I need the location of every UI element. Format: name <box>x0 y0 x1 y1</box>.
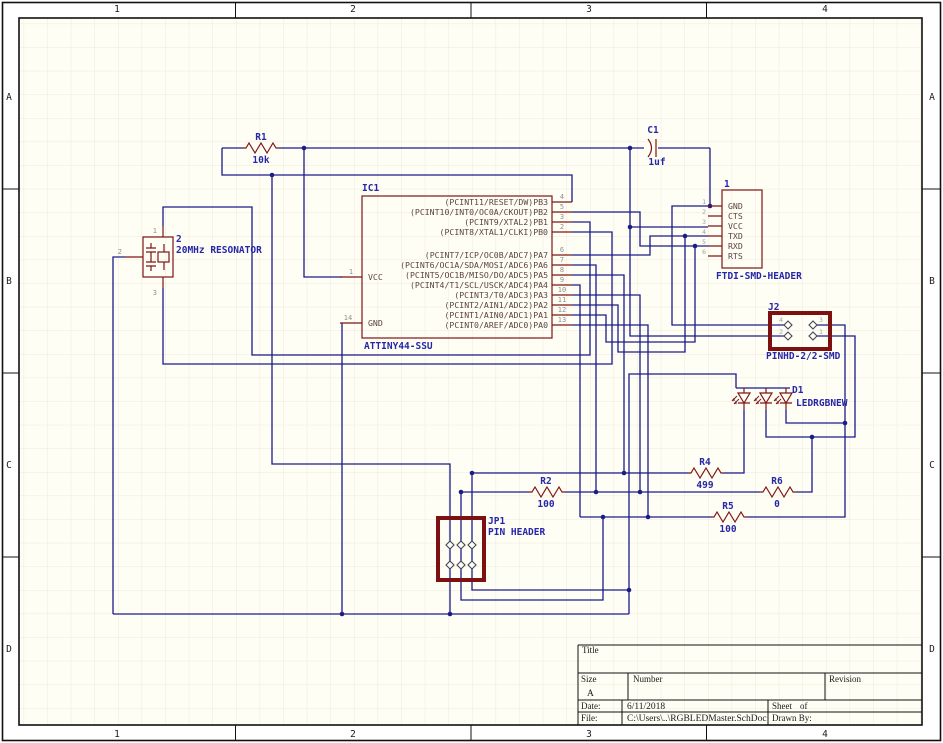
ic1-pin-number: 9 <box>560 276 564 284</box>
r6-designator: R6 <box>771 476 783 487</box>
titleblock-size-value: A <box>587 689 594 699</box>
jp1-designator: JP1 <box>488 516 505 527</box>
ftdi-pin-name: CTS <box>728 211 743 221</box>
zone-row-label: D <box>929 644 935 655</box>
r4-value: 499 <box>696 480 713 491</box>
ftdi-pin-name: VCC <box>728 221 743 231</box>
r5-designator: R5 <box>722 501 734 512</box>
zone-row-label: A <box>929 92 935 103</box>
ftdi-pin-number: 2 <box>702 208 706 216</box>
ftdi-pin-number: 5 <box>702 238 706 246</box>
ic1-pin-number: 13 <box>558 316 566 324</box>
ic1-pin-name: (PCINT2/AIN1/ADC2)PA2 <box>444 300 548 310</box>
zone-row-label: B <box>929 276 935 287</box>
ic1-designator: IC1 <box>362 183 379 194</box>
zone-row-label: C <box>929 460 935 471</box>
j2-designator: J2 <box>768 302 779 313</box>
schematic-sheet: 1 2 3 4 1 2 3 4 A B C D A B C D <box>0 0 943 743</box>
resonator-name: 20MHz RESONATOR <box>176 245 262 256</box>
ftdi-pin-number: 4 <box>702 228 706 236</box>
ic1-pin-number: 6 <box>560 246 564 254</box>
r6-value: 0 <box>774 499 780 510</box>
c1-designator: C1 <box>647 125 659 136</box>
ic1-pin-name: (PCINT6/OC1A/SDA/MOSI/ADC6)PA6 <box>400 260 548 270</box>
zone-col-label: 3 <box>586 729 592 740</box>
titleblock-sheet-of: of <box>800 701 808 711</box>
ic1-pin-name: (PCINT5/OC1B/MISO/DO/ADC5)PA5 <box>405 270 548 280</box>
d1-name: LEDRGBNEW <box>796 398 848 409</box>
ic1-pin-name: (PCINT1/AIN0/ADC1)PA1 <box>444 310 548 320</box>
ic1-pin-number: 5 <box>560 203 564 211</box>
titleblock-size-label: Size <box>581 674 597 684</box>
ic1-pin-number: 10 <box>558 286 566 294</box>
resonator-designator: 2 <box>176 234 182 245</box>
ftdi-pin-name: TXD <box>728 231 743 241</box>
ic1-pin-number: 1 <box>349 268 353 276</box>
zone-col-label: 1 <box>114 729 120 740</box>
resonator-pin-number: 3 <box>153 289 157 297</box>
zone-row-label: A <box>6 92 12 103</box>
sheet-grid <box>19 18 922 725</box>
r4-designator: R4 <box>699 457 711 468</box>
ic1-pin-name: (PCINT11/RESET/DW)PB3 <box>444 197 548 207</box>
ic1-pin-number: 8 <box>560 266 564 274</box>
ftdi-pin-name: RXD <box>728 241 743 251</box>
ftdi-pin-name: GND <box>728 201 743 211</box>
j2-pin-number: 4 <box>779 316 783 324</box>
ic1-pin-number: 4 <box>560 193 564 201</box>
zone-row-label: D <box>6 644 12 655</box>
ic1-pin-name: GND <box>368 318 383 328</box>
zone-row-label: B <box>6 276 12 287</box>
jp1-name: PIN HEADER <box>488 527 545 538</box>
zone-col-label: 2 <box>350 4 356 15</box>
titleblock-number-label: Number <box>633 674 663 684</box>
ic1-part-name: ATTINY44-SSU <box>364 341 433 352</box>
j2-pin-number: 3 <box>819 316 823 324</box>
ic1-pin-name: (PCINT10/INT0/OC0A/CKOUT)PB2 <box>410 207 548 217</box>
resonator-pin-number: 1 <box>153 227 157 235</box>
ic1-pin-number: 14 <box>344 314 352 322</box>
zone-col-label: 3 <box>586 4 592 15</box>
ftdi-name: FTDI-SMD-HEADER <box>716 271 802 282</box>
j2-pin-number: 1 <box>819 328 823 336</box>
ftdi-pin-name: RTS <box>728 251 743 261</box>
titleblock-revision-label: Revision <box>829 674 862 684</box>
r1-value: 10k <box>252 155 269 166</box>
ic1-pin-number: 12 <box>558 306 566 314</box>
titleblock-file-label: File: <box>581 713 598 723</box>
ic1-pin-name: VCC <box>368 272 383 282</box>
r1-designator: R1 <box>255 132 267 143</box>
zone-col-label: 2 <box>350 729 356 740</box>
ic1-pin-name: (PCINT9/XTAL2)PB1 <box>464 217 548 227</box>
c1-value: 1uf <box>648 157 665 168</box>
r5-value: 100 <box>719 524 736 535</box>
r2-value: 100 <box>537 499 554 510</box>
ic1-pin-number: 2 <box>560 223 564 231</box>
titleblock-drawnby-label: Drawn By: <box>772 713 812 723</box>
ic1-pin-name: (PCINT3/T0/ADC3)PA3 <box>454 290 548 300</box>
ic1-pin-number: 3 <box>560 213 564 221</box>
ic1-pin-name: (PCINT0/AREF/ADC0)PA0 <box>444 320 548 330</box>
ftdi-pin-number: 1 <box>702 198 706 206</box>
ftdi-pin-number: 3 <box>702 218 706 226</box>
ic1-pin-name: (PCINT8/XTAL1/CLKI)PB0 <box>440 227 549 237</box>
ic1-pin-number: 11 <box>558 296 566 304</box>
r2-designator: R2 <box>540 476 551 487</box>
titleblock-date-value: 6/11/2018 <box>627 702 665 712</box>
ic1-pin-name: (PCINT4/T1/SCL/USCK/ADC4)PA4 <box>410 280 548 290</box>
resonator-pin-number: 2 <box>118 248 122 256</box>
zone-row-label: C <box>6 460 12 471</box>
j2-pin-number: 2 <box>779 328 783 336</box>
titleblock-file-value: C:\Users\..\RGBLEDMaster.SchDoc <box>627 714 767 724</box>
ic1-pin-number: 7 <box>560 256 564 264</box>
zone-col-label: 4 <box>822 4 828 15</box>
zone-col-label: 1 <box>114 4 120 15</box>
titleblock-date-label: Date: <box>581 701 601 711</box>
titleblock-title-label: Title <box>582 645 599 655</box>
d1-designator: D1 <box>792 385 804 396</box>
ic1-pin-name: (PCINT7/ICP/OC0B/ADC7)PA7 <box>425 250 548 260</box>
ftdi-designator: 1 <box>724 179 730 190</box>
titleblock-sheet-label: Sheet <box>772 701 792 711</box>
zone-col-label: 4 <box>822 729 828 740</box>
j2-name: PINHD-2/2-SMD <box>766 351 841 362</box>
ftdi-pin-number: 6 <box>702 248 706 256</box>
